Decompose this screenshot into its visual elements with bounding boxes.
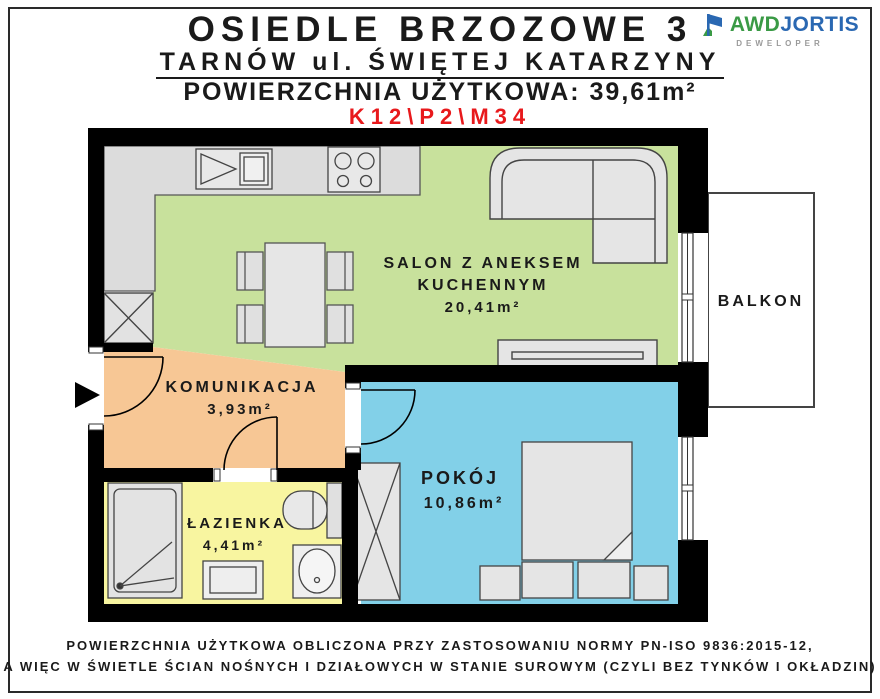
shower <box>108 483 182 598</box>
washing-machine <box>203 561 263 599</box>
chair <box>237 252 263 290</box>
label-salon-2: KUCHENNYM <box>418 277 549 294</box>
label-pokoj: POKÓJ <box>421 467 499 488</box>
label-salon-1: SALON Z ANEKSEM <box>383 255 582 272</box>
cooktop-hob <box>328 147 380 192</box>
footer-note-line1: POWIERZCHNIA UŻYTKOWA OBLICZONA PRZY ZAS… <box>0 638 880 653</box>
balcony-door-window <box>678 233 708 362</box>
shaft-box <box>104 293 153 343</box>
label-pokoj-area: 10,86m² <box>424 495 505 512</box>
floor-plan-svg: SALON Z ANEKSEM KUCHENNYM 20,41m² KOMUNI… <box>0 0 880 699</box>
label-balkon: BALKON <box>718 293 804 310</box>
label-lazienka: ŁAZIENKA <box>187 515 287 532</box>
label-salon-area: 20,41m² <box>445 299 522 316</box>
bed-cushion <box>578 562 630 598</box>
nightstand <box>634 566 668 600</box>
footer-note-line2: A WIĘC W ŚWIETLE ŚCIAN NOŚNYCH I DZIAŁOW… <box>0 659 880 674</box>
chair <box>237 305 263 343</box>
label-lazienka-area: 4,41m² <box>203 537 265 553</box>
chair <box>327 305 353 343</box>
washbasin <box>293 545 341 598</box>
floor-plan-page: { "header": { "title": "OSIEDLE BRZOZOWE… <box>0 0 880 699</box>
bedroom-window <box>678 437 708 540</box>
nightstand <box>480 566 520 600</box>
label-komunikacja-area: 3,93m² <box>207 401 273 418</box>
dining-table <box>265 243 325 347</box>
bed-cushion <box>522 562 573 598</box>
chair <box>327 252 353 290</box>
wardrobe <box>352 463 400 600</box>
label-komunikacja: KOMUNIKACJA <box>166 379 319 396</box>
kitchen-sink <box>196 149 272 189</box>
